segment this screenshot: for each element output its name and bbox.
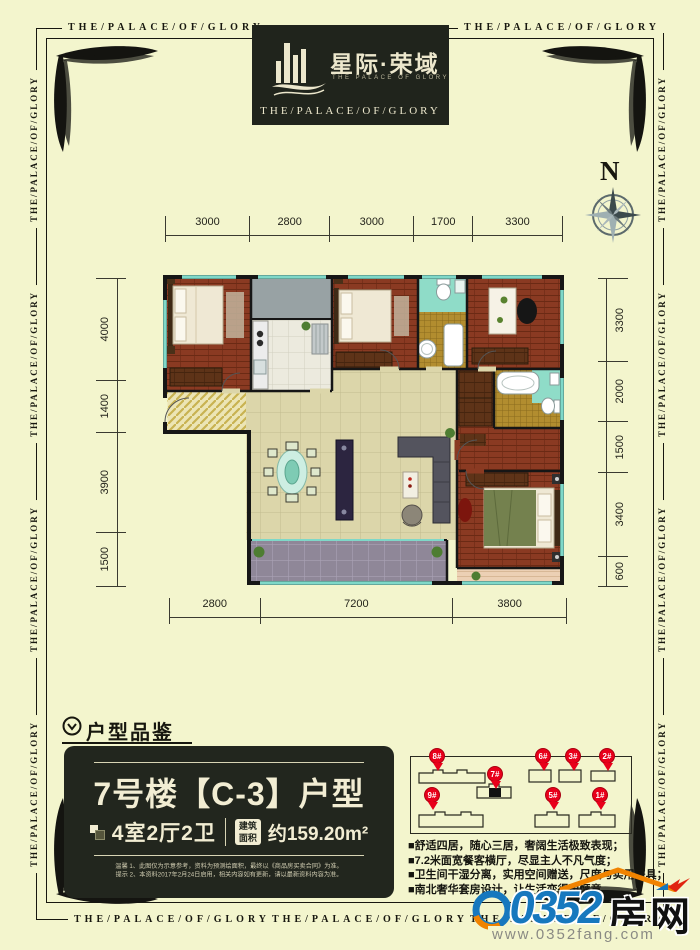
dimension-value: 3800 [497,598,521,610]
site-watermark-logo: 0352 房网 www.0352fang.com [468,866,700,950]
building-pin-label: 7# [487,766,503,782]
dimension-value: 7200 [344,598,368,610]
building-pin: 5# [545,787,562,811]
poster-page: { "border": { "phrase": "THE/PALACE/OF/G… [0,0,700,950]
building-pin-label: 3# [565,748,581,764]
dimension-line-left: 4000140039001500 [96,278,126,587]
divider [94,762,364,763]
corner-flourish-icon [538,42,650,154]
dimension-value: 1400 [99,394,111,418]
dimension-segment: 7200 [261,598,454,624]
dimension-segment: 600 [598,557,628,587]
building-pin: 3# [565,748,582,772]
dimension-value: 3400 [614,502,626,526]
brand-logo: 星际·荣域 THE PALACE OF GLORY THE/PALACE/OF/… [252,25,449,125]
disclaimer-line2: 提示 2、本资料2017年2月24日启用，相关内容如有更新，请以最新资料内容为准… [82,871,377,880]
dimension-segment: 3900 [96,433,126,533]
border-text: THE/PALACE/OF/GLORY [266,914,474,925]
border-text: THE/PALACE/OF/GLORY [29,715,39,873]
skyline-icon [270,35,328,99]
disclaimer-notes: 温馨 1、此图仅为示意参考，资料为预测绘面积，最终以《商品房买卖合同》为准。 提… [82,862,377,879]
dimension-value: 3300 [505,216,529,228]
area-badge: 建筑面积 [235,819,261,845]
building-pin-label: 5# [545,787,561,803]
dimension-segment: 3300 [598,279,628,362]
dimension-value: 3000 [195,216,219,228]
divider [94,855,364,856]
selling-point: ■舒适四居，随心三居，奢阔生活极致表现； [408,839,678,854]
building-pin: 6# [535,748,552,772]
building-pin: 2# [599,748,616,772]
unit-title: 7号楼【C-3】户型 [64,769,394,815]
building-pin-label: 9# [424,787,440,803]
disclaimer-line1: 温馨 1、此图仅为示意参考，资料为预测绘面积，最终以《商品房买卖合同》为准。 [82,862,377,871]
unit-layout: 4室2厅2卫 [112,817,216,847]
dimension-segment: 2000 [598,362,628,422]
dimension-value: 3300 [614,308,626,332]
brand-tagline: THE/PALACE/OF/GLORY [252,105,449,117]
dimension-value: 3900 [99,470,111,494]
dimension-value: 2800 [277,216,301,228]
dimension-line-right: 3300200015003400600 [598,278,628,587]
border-text: THE/PALACE/OF/GLORY [657,500,667,658]
border-text: THE/PALACE/OF/GLORY [657,70,667,228]
dimension-segment: 4000 [96,279,126,381]
building-pin-label: 6# [535,748,551,764]
dimension-segment: 1700 [414,216,473,242]
compass-north-label: N [600,156,620,187]
brand-name-cn: 星际·荣域 [330,45,440,79]
border-text: THE/PALACE/OF/GLORY [68,914,276,925]
building-pin: 1# [592,787,609,811]
border-text: THE/PALACE/OF/GLORY [29,500,39,658]
dimension-value: 2000 [614,379,626,403]
dimension-value: 600 [614,562,626,580]
dimension-value: 1500 [614,435,626,459]
site-plan: 8# 7# 6# 3# 2# 9# 5# 1# [410,756,632,834]
dimension-segment: 3300 [473,216,563,242]
dimension-segment: 2800 [250,216,330,242]
border-text: THE/PALACE/OF/GLORY [62,22,270,33]
building-pin-label: 2# [599,748,615,764]
section-title: 户型品鉴 [86,722,174,744]
dimension-segment: 1500 [96,533,126,587]
section-header: 户型品鉴 [62,716,174,745]
unit-subtitle-row: 4室2厅2卫 建筑面积 约159.20m² [64,814,394,850]
brand-name-en: THE PALACE OF GLORY [332,75,449,81]
dimension-segment: 3400 [598,473,628,557]
building-pin-label: 1# [592,787,608,803]
dimension-value: 2800 [203,598,227,610]
dimension-value: 4000 [99,317,111,341]
compass-rose-icon [584,186,642,244]
dimension-line-top: 30002800300017003300 [165,216,563,242]
dimension-value: 1700 [431,216,455,228]
building-pin: 9# [424,787,441,811]
dimension-segment: 2800 [170,598,261,624]
dimension-segment: 3000 [166,216,250,242]
logo-url[interactable]: www.0352fang.com [488,926,659,943]
area-badge-line1: 建筑 [239,821,257,831]
divider [225,818,226,846]
dimension-value: 1500 [99,547,111,571]
building-pin: 7# [487,766,504,790]
squares-icon [90,825,105,840]
border-text: THE/PALACE/OF/GLORY [29,285,39,443]
floor-plan [160,272,565,587]
section-underline [62,742,192,744]
border-text: THE/PALACE/OF/GLORY [29,70,39,228]
dimension-value: 3000 [360,216,384,228]
unit-info-box: 7号楼【C-3】户型 4室2厅2卫 建筑面积 约159.20m² 温馨 1、此图… [64,746,394,898]
border-text: THE/PALACE/OF/GLORY [458,22,666,33]
chevron-down-circle-icon [62,716,82,736]
border-text: THE/PALACE/OF/GLORY [657,285,667,443]
building-pin-label: 8# [429,748,445,764]
unit-area: 约159.20m² [268,819,368,846]
dimension-segment: 1500 [598,422,628,473]
dimension-segment: 3000 [330,216,414,242]
area-badge-line2: 面积 [239,833,257,843]
corner-flourish-icon [50,42,162,154]
dimension-segment: 1400 [96,381,126,433]
dimension-segment: 3800 [453,598,567,624]
dimension-line-bottom: 280072003800 [169,598,567,624]
building-pin: 8# [429,748,446,772]
